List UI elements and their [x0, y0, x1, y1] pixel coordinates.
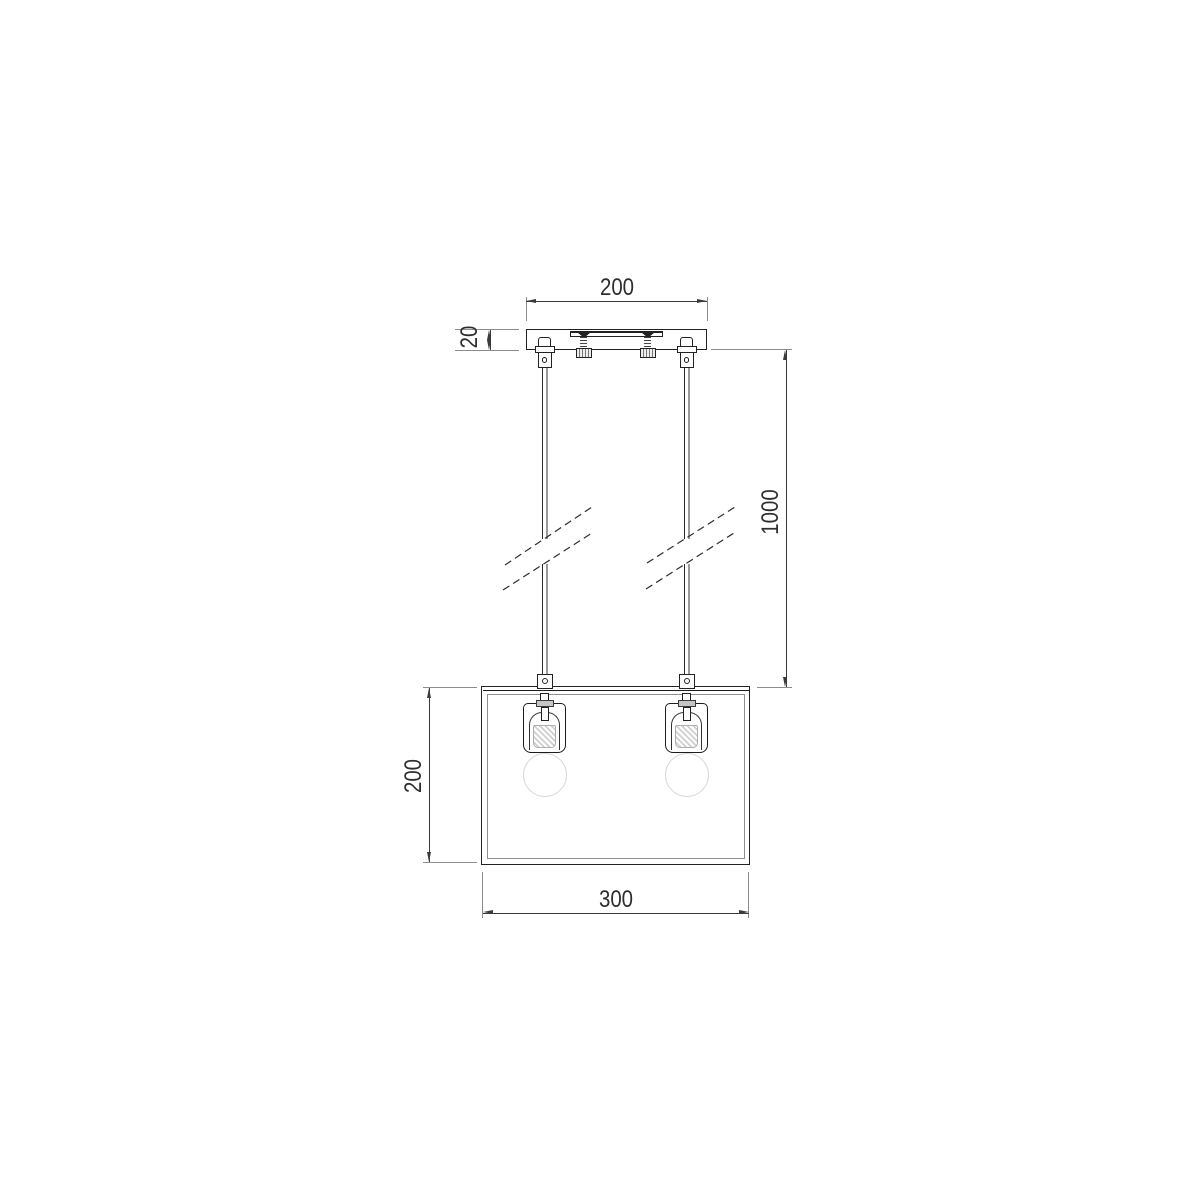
- left-socket-body: [533, 725, 556, 749]
- right-socket-body: [675, 725, 698, 749]
- right-bulb: [665, 753, 709, 797]
- right-screw-nut: [640, 348, 656, 358]
- dim-shade-width-label: 300: [599, 886, 633, 914]
- left-break-mark-upper: [505, 507, 592, 565]
- extension-line: [757, 687, 792, 688]
- left-break-mark-lower: [503, 533, 592, 590]
- dim-canopy-width-label: 200: [600, 274, 634, 302]
- dim-canopy-height-label: 20: [456, 326, 484, 349]
- extension-line: [711, 349, 792, 350]
- arrowhead: [526, 299, 536, 303]
- right-rod-holder-setscrew-hole: [684, 357, 690, 363]
- extension-line: [423, 862, 477, 863]
- extension-line: [423, 687, 477, 688]
- extension-line: [455, 350, 519, 351]
- left-rod-holder-setscrew-hole: [542, 357, 548, 363]
- left-stem-lower: [541, 707, 549, 722]
- arrowhead: [427, 852, 431, 862]
- dimension-line: [429, 688, 430, 862]
- right-break-mark-lower: [646, 533, 734, 589]
- arrowhead: [739, 910, 749, 914]
- right-connector-setscrew-hole: [684, 678, 690, 684]
- dim-shade-height-label: 200: [400, 759, 428, 793]
- break-marks-layer: [0, 0, 1200, 1200]
- arrowhead: [783, 677, 787, 687]
- arrowhead: [487, 340, 491, 350]
- arrowhead: [697, 299, 707, 303]
- right-break-mark-upper: [647, 507, 735, 563]
- left-connector-setscrew-hole: [542, 678, 548, 684]
- dimension-line: [786, 350, 787, 687]
- shade-frame-top-rim: [483, 690, 749, 691]
- drawing-canvas: 200 20 1000 200 300: [0, 0, 1200, 1200]
- arrowhead: [487, 330, 491, 340]
- right-stem-lower: [683, 707, 691, 722]
- left-screw-nut: [576, 348, 592, 358]
- arrowhead: [483, 910, 493, 914]
- arrowhead: [783, 350, 787, 360]
- arrowhead: [427, 688, 431, 698]
- dim-suspension-length-label: 1000: [757, 489, 785, 534]
- left-bulb: [523, 753, 567, 797]
